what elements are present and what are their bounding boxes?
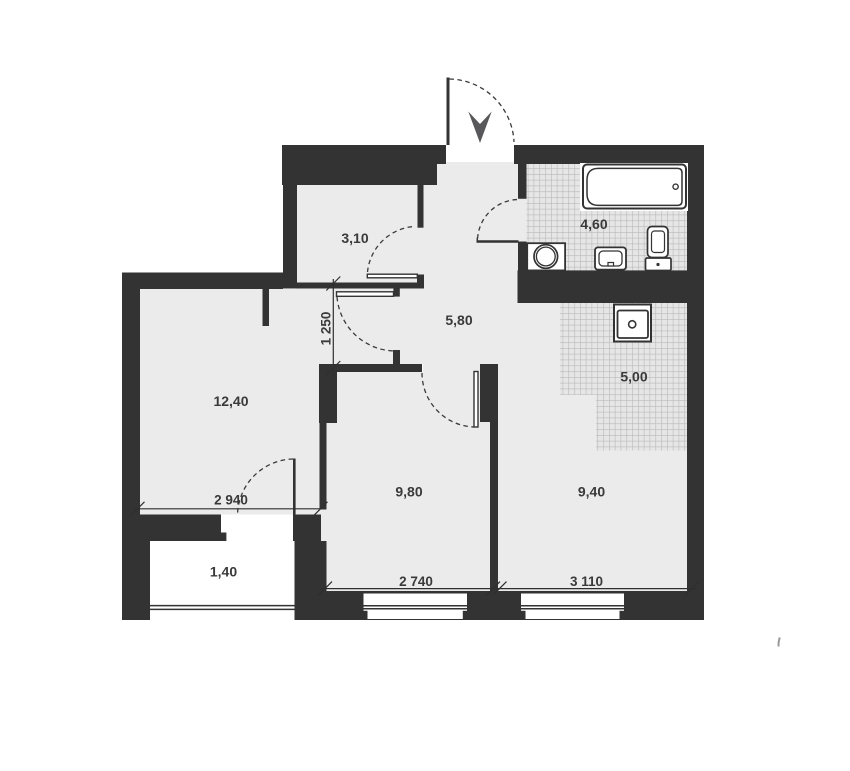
svg-text:9,40: 9,40: [578, 484, 605, 500]
svg-text:1,40: 1,40: [210, 564, 237, 580]
svg-text:2 940: 2 940: [214, 493, 248, 508]
svg-text:9,80: 9,80: [395, 484, 422, 500]
svg-text:5,80: 5,80: [445, 312, 472, 328]
svg-text:5,00: 5,00: [620, 369, 647, 385]
svg-text:4,60: 4,60: [580, 216, 607, 232]
svg-text:2 740: 2 740: [399, 574, 433, 589]
svg-text:1 250: 1 250: [319, 312, 334, 346]
svg-text:3 110: 3 110: [570, 574, 603, 589]
svg-text:3,10: 3,10: [341, 230, 368, 246]
svg-text:12,40: 12,40: [213, 393, 248, 409]
